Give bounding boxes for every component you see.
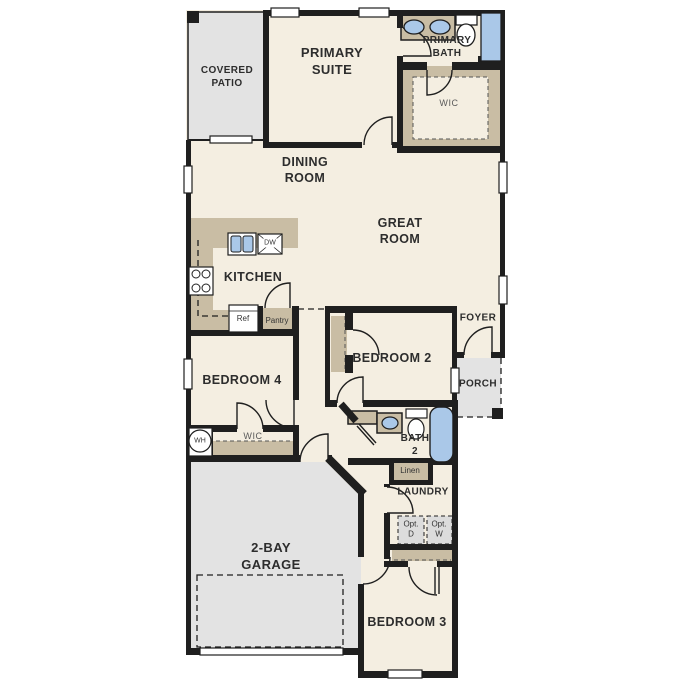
primary-toilet-bowl [457, 24, 475, 46]
water-heater [189, 428, 212, 456]
patio-corner-post [187, 11, 199, 23]
window-suite-1 [271, 8, 299, 17]
range-stove [189, 267, 213, 295]
window-great-2 [499, 276, 507, 304]
window-great-1 [499, 162, 507, 193]
window-bedroom2-porch [451, 368, 459, 393]
window-bedroom4 [184, 359, 192, 389]
bath2-toilet-bowl [408, 419, 424, 439]
dryer-box [398, 516, 424, 544]
garage-floor [191, 462, 361, 648]
floor-plan: COVERED PATIO PRIMARY SUITE PRIMARY BATH… [0, 0, 687, 687]
patio-slider [210, 136, 252, 143]
kitchen-sink-basin-left [231, 236, 241, 252]
window-suite-2 [359, 8, 389, 17]
bath2-sink [382, 417, 398, 429]
floor-plan-canvas [0, 0, 687, 687]
refrigerator [229, 305, 258, 332]
window-bedroom3 [388, 670, 422, 678]
primary-sink-right [430, 20, 450, 34]
bath2-tub [430, 407, 453, 462]
dishwasher [258, 234, 282, 254]
bedroom4-wic-shelf [213, 441, 294, 457]
bath2-toilet-tank [406, 409, 427, 418]
garage-door [200, 648, 343, 655]
bedroom3-closet-shelf [392, 550, 453, 561]
primary-shower [481, 13, 501, 61]
kitchen-counter-lower [191, 310, 229, 330]
pantry-floor [262, 308, 292, 332]
covered-patio-floor [188, 12, 266, 140]
primary-sink-left [404, 20, 424, 34]
kitchen-sink-basin-right [243, 236, 253, 252]
window-dining [184, 166, 192, 193]
washer-box [427, 516, 452, 544]
primary-wic-floor [413, 77, 488, 139]
linen-closet [394, 463, 428, 480]
